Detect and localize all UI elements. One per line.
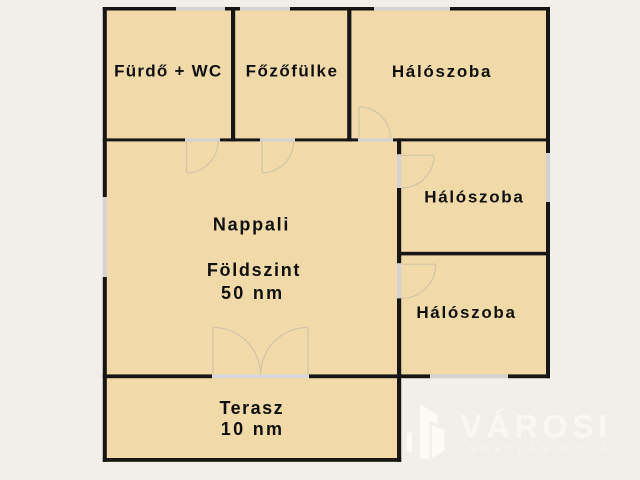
svg-text:50 nm: 50 nm — [221, 283, 284, 303]
svg-text:10 nm: 10 nm — [221, 419, 285, 439]
svg-text:Főzőfülke: Főzőfülke — [246, 62, 339, 81]
svg-text:Földszint: Földszint — [207, 260, 301, 280]
svg-text:Hálószoba: Hálószoba — [416, 303, 516, 322]
svg-text:Terasz: Terasz — [219, 398, 284, 418]
svg-text:INGATLANIRODA: INGATLANIRODA — [461, 444, 613, 455]
svg-text:Hálószoba: Hálószoba — [424, 187, 524, 206]
svg-text:Nappali: Nappali — [213, 215, 290, 235]
svg-text:Fürdő + WC: Fürdő + WC — [114, 62, 222, 81]
svg-text:Hálószoba: Hálószoba — [392, 62, 492, 81]
svg-text:VÁROSI: VÁROSI — [460, 408, 612, 445]
